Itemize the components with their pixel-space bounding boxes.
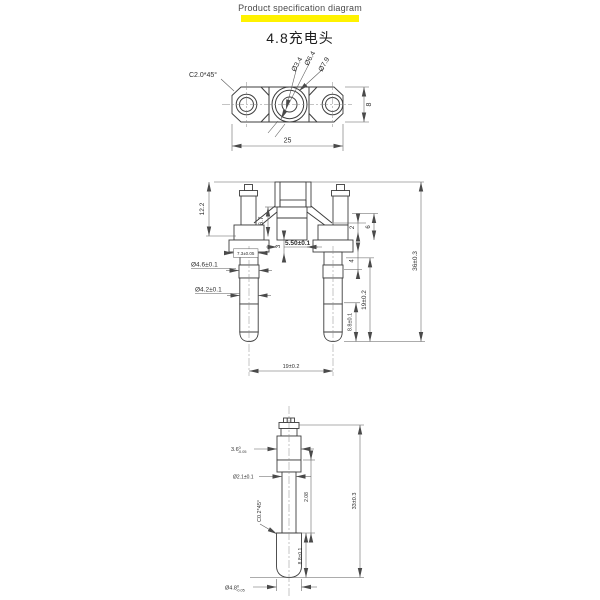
dim-label-total-length: 33±0.3 bbox=[352, 493, 358, 510]
pin-detail-view: 3.60-0.05 Ø2.1±0.1 2.08 C0.2*45° 8.8±0.1… bbox=[225, 406, 364, 598]
dim-label-dia-mid: Ø6.4 bbox=[304, 50, 318, 67]
dim-label-height: 8 bbox=[366, 102, 373, 106]
dim-label-detail-tip-length: 8.8±0.1 bbox=[298, 547, 304, 564]
page: Product specification diagram 4.8充电头 bbox=[0, 0, 600, 600]
dim-label-width: 25 bbox=[284, 138, 292, 145]
dim-label-left-height: 12.2 bbox=[199, 202, 206, 215]
dim-label-shoulder-width: 7.3±0.05 bbox=[237, 251, 255, 256]
dim-label-right-step: 2 bbox=[350, 225, 356, 229]
technical-drawing: Ø3.4 Ø6.4 Ø7.9 C2.0*45° 8 25 bbox=[0, 0, 600, 600]
dim-label-detail-chamfer: C0.2*45° bbox=[257, 500, 263, 522]
dim-label-tip-length: 8.8±0.1 bbox=[348, 313, 354, 331]
dim-label-tip-dia: Ø4.80-0.05 bbox=[225, 584, 245, 592]
dim-label-right-mid: 4 bbox=[350, 259, 356, 263]
dim-label-total-height: 36±0.3 bbox=[412, 251, 419, 271]
dim-label-body-width: 3.60-0.05 bbox=[231, 446, 246, 454]
dim-label-slot-width: 5.50±0.1 bbox=[285, 240, 311, 247]
dim-label-dia-large: Ø7.9 bbox=[318, 56, 332, 73]
dim-label-chamfer: C2.0*45° bbox=[189, 71, 217, 79]
dim-label-step-height: 3 bbox=[276, 244, 282, 248]
housing-lower-block bbox=[277, 207, 307, 240]
dim-label-pin-length: 19±0.2 bbox=[361, 290, 368, 310]
front-view: 12.2 6.7 3 5.50±0.1 7.3±0.05 Ø4.6±0.1 bbox=[191, 182, 425, 376]
dim-label-right-height: 6 bbox=[366, 225, 372, 229]
dim-label-pin-dia-lower: Ø4.2±0.1 bbox=[195, 287, 222, 294]
top-view: Ø3.4 Ø6.4 Ø7.9 C2.0*45° 8 25 bbox=[189, 50, 373, 151]
dim-label-mid-height: 6.7 bbox=[258, 216, 265, 225]
dim-label-shaft-dia: Ø2.1±0.1 bbox=[233, 475, 254, 481]
dim-label-pin-dia-upper: Ø4.6±0.1 bbox=[191, 262, 218, 269]
dim-label-pin-pitch: 19±0.2 bbox=[283, 364, 300, 370]
dim-label-dia-small: Ø3.4 bbox=[291, 56, 305, 73]
dim-label-mid-length: 2.08 bbox=[304, 492, 310, 502]
